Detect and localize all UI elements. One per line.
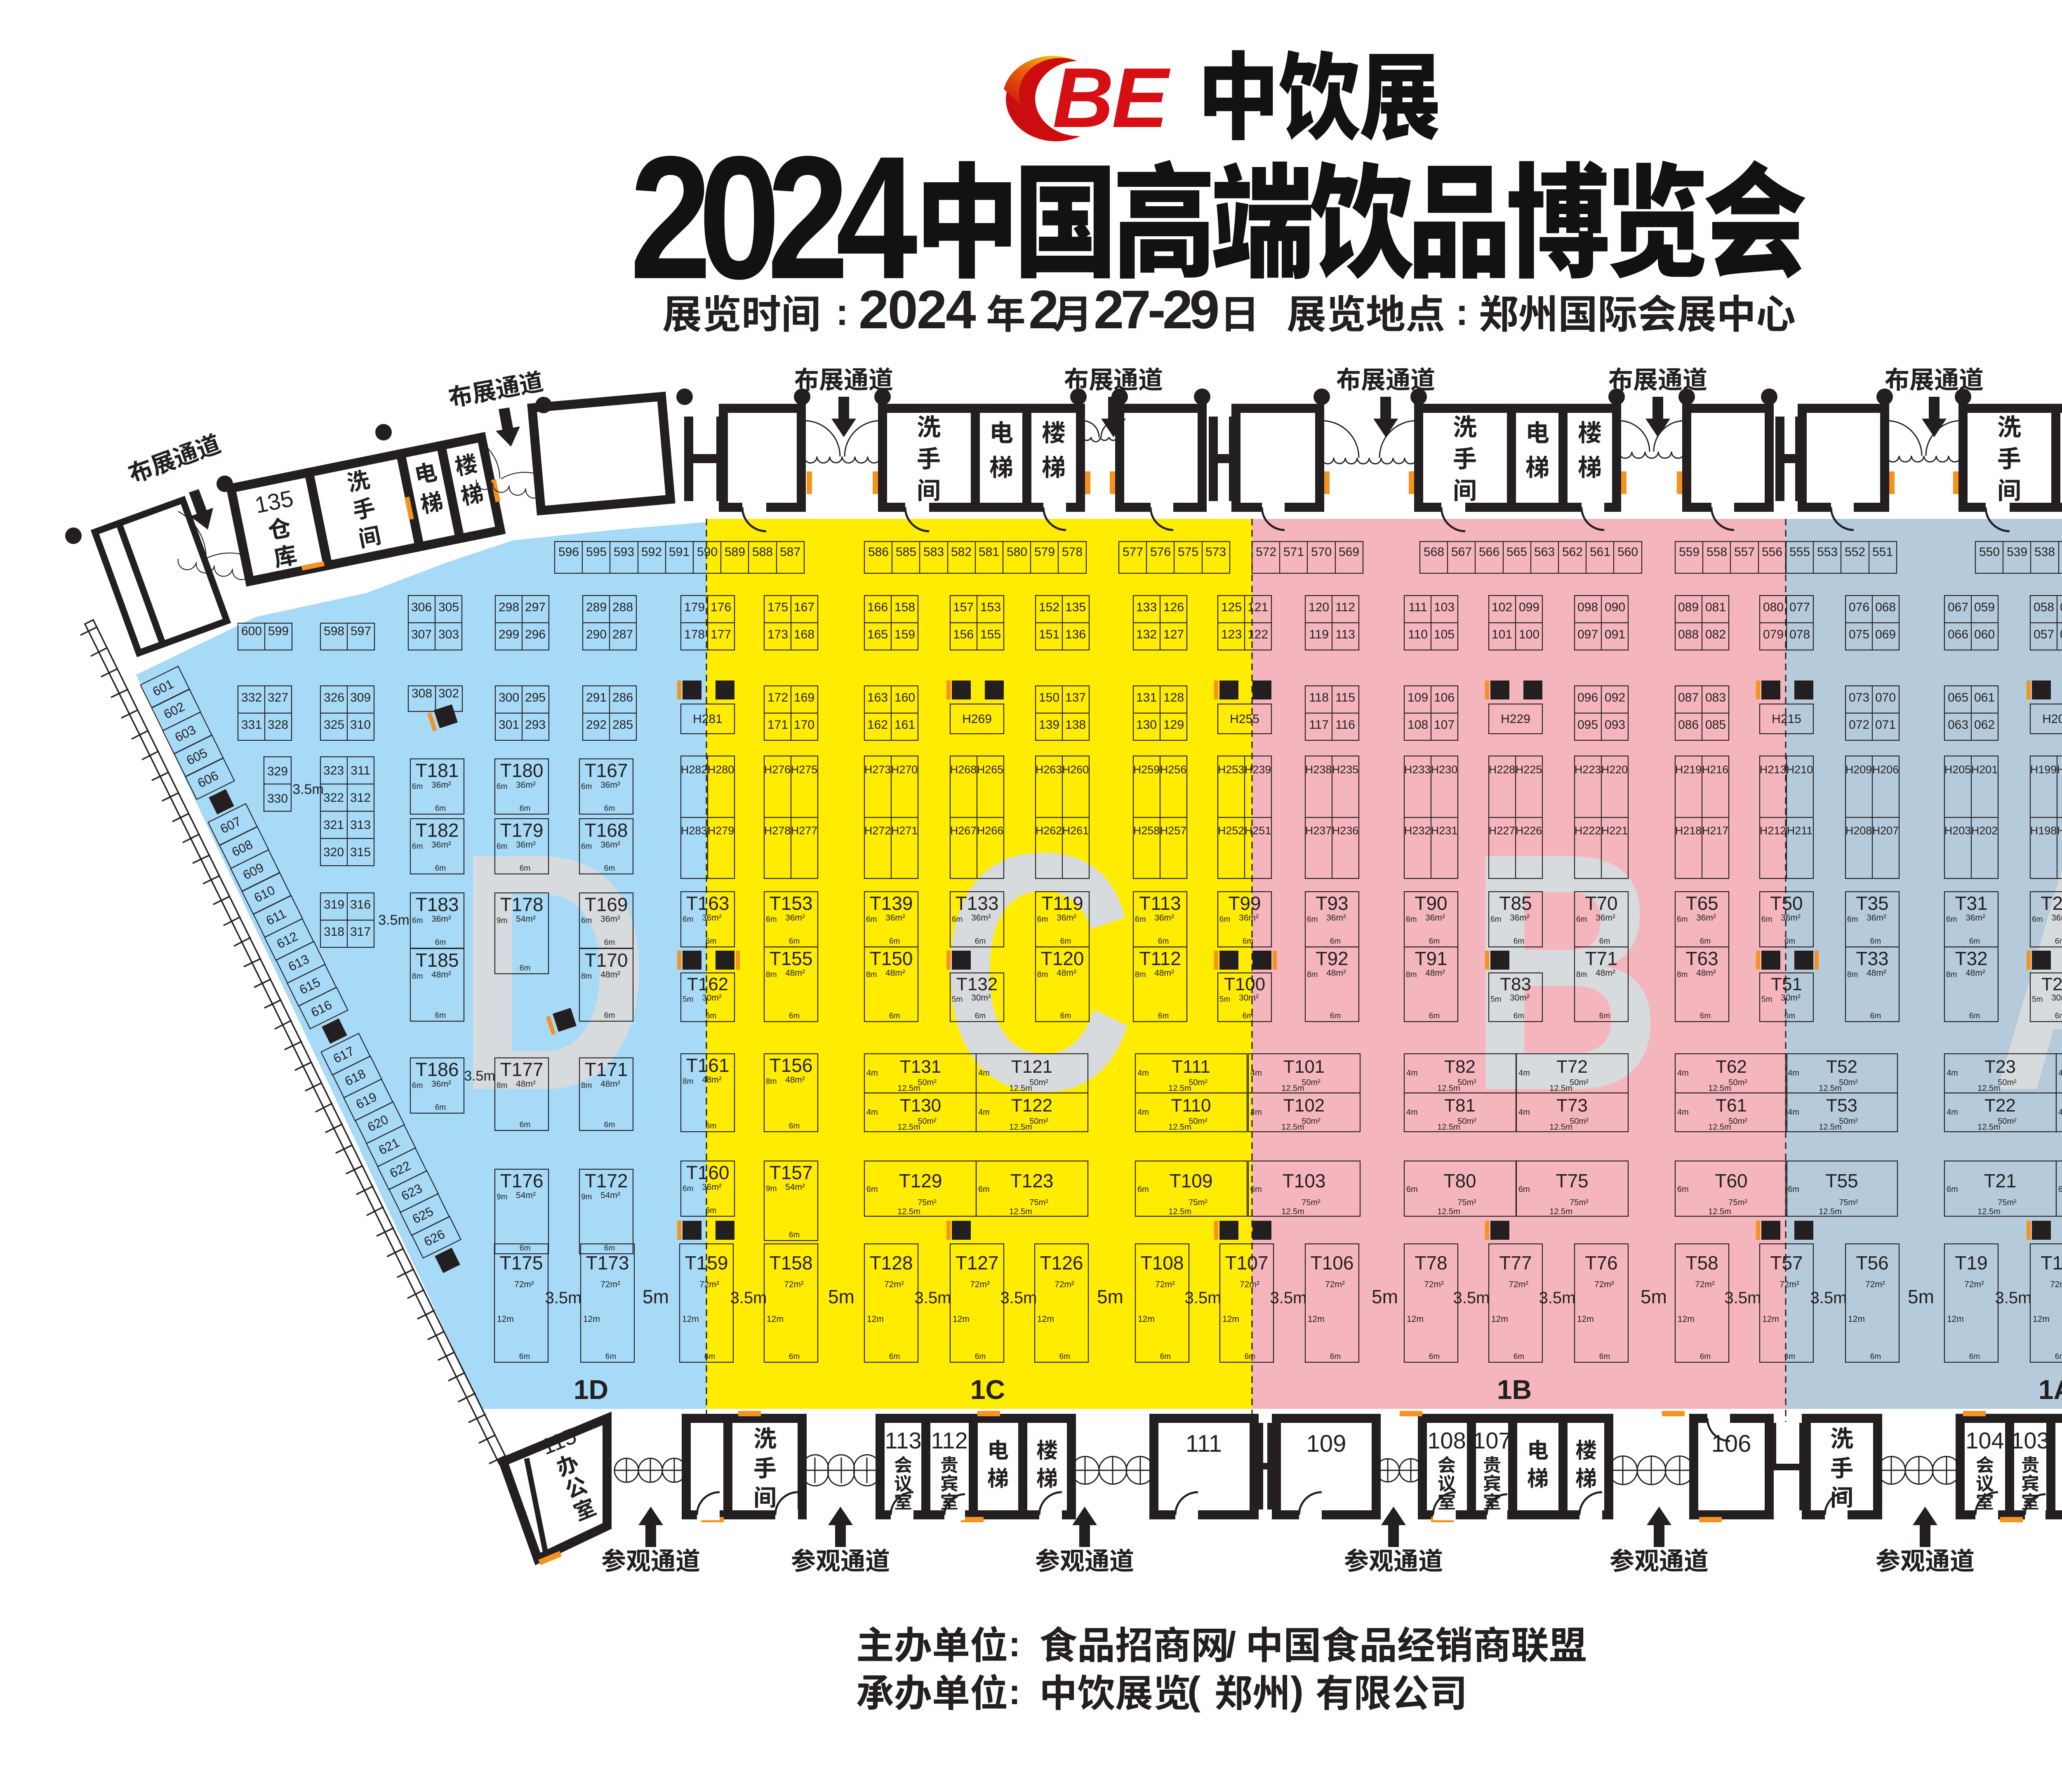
svg-text:75m²: 75m²	[1029, 1198, 1048, 1207]
svg-text:48m²: 48m²	[1867, 968, 1886, 978]
svg-text:104: 104	[1965, 1427, 2004, 1453]
svg-text:6m: 6m	[889, 1352, 900, 1361]
svg-text:12m: 12m	[682, 1314, 699, 1324]
svg-text:5m: 5m	[1761, 995, 1772, 1004]
svg-text:6m: 6m	[706, 1122, 716, 1130]
svg-text:36m²: 36m²	[431, 780, 451, 790]
svg-text:H256: H256	[1160, 763, 1187, 776]
svg-text:068: 068	[1875, 600, 1896, 614]
svg-text:12m: 12m	[1138, 1314, 1155, 1324]
svg-text:T126: T126	[1040, 1252, 1083, 1274]
svg-text:8m: 8m	[581, 972, 592, 981]
svg-text:T22: T22	[1984, 1095, 2016, 1116]
svg-text:12.5m: 12.5m	[1168, 1207, 1191, 1216]
svg-text:6m: 6m	[683, 1184, 693, 1193]
svg-text:6m: 6m	[1243, 1012, 1253, 1020]
svg-text:H230: H230	[1431, 763, 1458, 776]
svg-text:097: 097	[1577, 628, 1598, 641]
svg-text:118: 118	[1309, 691, 1329, 704]
svg-text:12.5m: 12.5m	[1708, 1123, 1731, 1132]
svg-text:H232: H232	[1404, 824, 1431, 837]
svg-text:320: 320	[323, 845, 344, 859]
svg-text:539: 539	[2007, 545, 2027, 559]
svg-text:50m²: 50m²	[1998, 1078, 2017, 1087]
svg-text:4m: 4m	[1788, 1108, 1799, 1117]
svg-text:50m²: 50m²	[1302, 1117, 1321, 1126]
svg-text:T111: T111	[1172, 1057, 1210, 1077]
svg-text:088: 088	[1678, 628, 1699, 641]
svg-text:T77: T77	[1499, 1252, 1532, 1274]
svg-text:50m²: 50m²	[1570, 1078, 1589, 1087]
svg-text:589: 589	[725, 545, 745, 559]
svg-text:8m: 8m	[766, 1077, 777, 1086]
svg-text:5m: 5m	[683, 995, 693, 1004]
svg-text:153: 153	[980, 600, 1001, 614]
svg-text:6m: 6m	[520, 864, 530, 873]
svg-text:12m: 12m	[1308, 1314, 1325, 1324]
svg-text:072: 072	[1849, 718, 1869, 732]
svg-text:50m²: 50m²	[918, 1078, 937, 1087]
svg-text:588: 588	[752, 545, 773, 559]
svg-text:080: 080	[1763, 600, 1784, 614]
svg-text:48m²: 48m²	[600, 1079, 620, 1089]
svg-text:H219: H219	[1675, 763, 1702, 776]
svg-text:T112: T112	[1139, 948, 1181, 969]
svg-text:3.5m: 3.5m	[1725, 1289, 1761, 1307]
svg-text:6m: 6m	[766, 915, 777, 924]
svg-text:6m: 6m	[1160, 1352, 1171, 1361]
svg-text:72m²: 72m²	[970, 1280, 990, 1289]
svg-text:096: 096	[1577, 691, 1598, 704]
svg-text:061: 061	[1974, 691, 1995, 704]
svg-text:48m²: 48m²	[785, 1075, 805, 1085]
svg-text:12.5m: 12.5m	[1977, 1084, 2001, 1093]
svg-text:6m: 6m	[581, 782, 592, 791]
svg-text:600: 600	[241, 624, 262, 638]
svg-text:6m: 6m	[1700, 937, 1711, 946]
svg-text:576: 576	[1150, 545, 1171, 559]
svg-text:6m: 6m	[789, 1012, 800, 1020]
svg-text:6m: 6m	[412, 782, 423, 791]
svg-text:48m²: 48m²	[1154, 968, 1174, 978]
svg-text:136: 136	[1065, 628, 1086, 641]
svg-text:310: 310	[350, 718, 371, 732]
svg-text:6m: 6m	[497, 782, 507, 791]
svg-text:312: 312	[350, 791, 371, 805]
svg-text:H221: H221	[1601, 824, 1628, 837]
svg-text:T21: T21	[1984, 1170, 2016, 1192]
svg-text:36m²: 36m²	[431, 840, 451, 850]
svg-text:T35: T35	[1856, 892, 1888, 914]
svg-text:287: 287	[612, 628, 633, 641]
svg-text:6m: 6m	[1514, 1352, 1524, 1361]
svg-text:056: 056	[2060, 628, 2062, 641]
svg-text:5m: 5m	[1097, 1286, 1123, 1307]
svg-text:6m: 6m	[1429, 1012, 1440, 1020]
svg-text:27-29: 27-29	[1094, 279, 1218, 340]
svg-text:12.5m: 12.5m	[1168, 1123, 1191, 1132]
svg-text:6m: 6m	[1784, 937, 1795, 946]
svg-text:166: 166	[867, 600, 888, 614]
svg-text:6m: 6m	[975, 1352, 986, 1361]
svg-text:117: 117	[1309, 718, 1329, 732]
svg-text:6m: 6m	[889, 1012, 900, 1020]
svg-text:12.5m: 12.5m	[1009, 1084, 1032, 1093]
svg-text:72m²: 72m²	[1695, 1280, 1715, 1289]
svg-text:30m²: 30m²	[1781, 993, 1801, 1003]
svg-text:6m: 6m	[1429, 937, 1440, 946]
svg-text:6m: 6m	[1307, 915, 1318, 924]
svg-text:T78: T78	[1415, 1252, 1447, 1274]
svg-text:559: 559	[1679, 545, 1700, 559]
svg-text:177: 177	[711, 628, 731, 641]
svg-text:4m: 4m	[866, 1069, 878, 1078]
svg-text:12m: 12m	[1222, 1314, 1239, 1324]
svg-text:8m: 8m	[1135, 970, 1146, 979]
svg-text:T25: T25	[2041, 974, 2062, 994]
svg-text:6m: 6m	[1514, 937, 1524, 946]
svg-text:6m: 6m	[1599, 937, 1610, 946]
svg-text:1A: 1A	[2038, 1374, 2062, 1405]
svg-text:6m: 6m	[683, 915, 693, 924]
svg-text:085: 085	[1705, 718, 1726, 732]
svg-text:138: 138	[1065, 718, 1086, 732]
svg-text:577: 577	[1123, 545, 1143, 559]
svg-text:36m²: 36m²	[600, 780, 620, 790]
svg-text:36m²: 36m²	[431, 1079, 451, 1089]
svg-text:565: 565	[1506, 545, 1527, 559]
svg-text:36m²: 36m²	[1154, 913, 1174, 923]
svg-text:T90: T90	[1415, 892, 1447, 914]
svg-text:6m: 6m	[1060, 937, 1071, 946]
svg-text:4m: 4m	[978, 1069, 990, 1078]
svg-text:T58: T58	[1685, 1252, 1718, 1274]
svg-text:3.5m: 3.5m	[1539, 1289, 1576, 1307]
svg-text:T153: T153	[770, 892, 813, 914]
svg-text:T60: T60	[1715, 1170, 1747, 1192]
svg-text:12.5m: 12.5m	[1819, 1123, 1842, 1132]
svg-text:6m: 6m	[604, 1011, 615, 1020]
svg-text:060: 060	[1974, 628, 1995, 641]
svg-text:3.5m: 3.5m	[1995, 1289, 2032, 1307]
svg-text:48m²: 48m²	[885, 968, 905, 978]
svg-text:580: 580	[1007, 545, 1027, 559]
svg-text:331: 331	[241, 718, 262, 732]
svg-text:72m²: 72m²	[884, 1280, 904, 1289]
svg-text:H255: H255	[1230, 712, 1259, 726]
svg-text:48m²: 48m²	[1425, 968, 1445, 978]
svg-text:H261: H261	[1062, 824, 1089, 837]
svg-text:T110: T110	[1171, 1095, 1211, 1116]
svg-text:H259: H259	[1133, 763, 1160, 776]
svg-text:059: 059	[1974, 600, 1995, 614]
svg-text:6m: 6m	[520, 804, 530, 813]
svg-text:H258: H258	[1133, 824, 1160, 837]
svg-text:12.5m: 12.5m	[897, 1123, 920, 1132]
svg-text:H260: H260	[1062, 763, 1089, 776]
svg-text:567: 567	[1451, 545, 1472, 559]
svg-text:157: 157	[953, 600, 974, 614]
svg-text:599: 599	[268, 624, 289, 638]
svg-text:30m²: 30m²	[702, 993, 722, 1003]
svg-text:8m: 8m	[1037, 970, 1048, 979]
svg-text:30m²: 30m²	[1239, 993, 1259, 1003]
svg-text:6m: 6m	[1599, 1012, 1610, 1020]
svg-text:598: 598	[324, 624, 344, 638]
svg-text:316: 316	[350, 898, 371, 911]
svg-text:H205: H205	[1944, 763, 1971, 776]
svg-text:332: 332	[241, 691, 262, 704]
svg-text:T32: T32	[1955, 948, 1987, 969]
svg-text:556: 556	[1762, 545, 1782, 559]
svg-text:315: 315	[350, 845, 371, 859]
svg-text:H271: H271	[891, 824, 918, 837]
svg-text:4m: 4m	[1947, 1069, 1958, 1078]
svg-text:6m: 6m	[412, 842, 423, 851]
svg-text:6m: 6m	[1243, 937, 1253, 946]
svg-text:T65: T65	[1685, 892, 1718, 914]
svg-text:081: 081	[1705, 600, 1726, 614]
svg-text:H208: H208	[1845, 824, 1872, 837]
svg-text:12m: 12m	[1407, 1314, 1424, 1324]
svg-text:570: 570	[1311, 545, 1332, 559]
svg-text:H222: H222	[1575, 824, 1601, 837]
svg-text:592: 592	[641, 545, 662, 559]
svg-text:75m²: 75m²	[918, 1198, 937, 1207]
svg-text:6m: 6m	[1037, 915, 1048, 924]
svg-text:128: 128	[1163, 691, 1184, 704]
svg-text:H257: H257	[1160, 824, 1187, 837]
svg-text:103: 103	[1434, 600, 1455, 614]
svg-text:289: 289	[586, 600, 607, 614]
svg-text:T156: T156	[770, 1055, 813, 1076]
svg-text:585: 585	[896, 545, 916, 559]
svg-text:36m²: 36m²	[1596, 913, 1615, 923]
svg-text:H228: H228	[1489, 763, 1516, 776]
svg-text:6m: 6m	[412, 1081, 423, 1090]
svg-text:1B: 1B	[1497, 1374, 1532, 1405]
svg-text:6m: 6m	[789, 1352, 800, 1361]
svg-text:T26: T26	[2041, 892, 2062, 914]
svg-text:109: 109	[1408, 691, 1428, 704]
svg-text:6m: 6m	[1059, 1352, 1070, 1361]
svg-text:581: 581	[979, 545, 999, 559]
svg-text:158: 158	[894, 600, 915, 614]
svg-text:H236: H236	[1332, 824, 1359, 837]
svg-text:T183: T183	[416, 894, 459, 915]
svg-text:4m: 4m	[2058, 1108, 2062, 1117]
svg-text:099: 099	[1519, 600, 1539, 614]
svg-text:105: 105	[1434, 628, 1455, 641]
svg-text:069: 069	[1875, 628, 1896, 641]
svg-text:561: 561	[1590, 545, 1610, 559]
svg-text:305: 305	[438, 600, 459, 614]
svg-text:126: 126	[1163, 600, 1184, 614]
svg-text:116: 116	[1335, 718, 1355, 732]
svg-text:H216: H216	[1702, 763, 1729, 776]
svg-text:4m: 4m	[866, 1108, 878, 1117]
svg-text::: :	[1008, 1671, 1020, 1712]
svg-text:H223: H223	[1575, 763, 1601, 776]
svg-text:T102: T102	[1283, 1095, 1325, 1116]
svg-text:T180: T180	[500, 760, 544, 781]
svg-text:36m²: 36m²	[1239, 913, 1259, 923]
svg-text:6m: 6m	[789, 1231, 800, 1239]
svg-text:30m²: 30m²	[1510, 993, 1530, 1003]
svg-text:12.5m: 12.5m	[1281, 1123, 1304, 1132]
svg-text:106: 106	[1434, 691, 1455, 704]
svg-text:6m: 6m	[1490, 915, 1501, 924]
svg-text:36m²: 36m²	[516, 780, 536, 790]
svg-text:12.5m: 12.5m	[1549, 1207, 1572, 1216]
svg-text:5m: 5m	[2032, 995, 2043, 1004]
svg-text:5m: 5m	[1641, 1286, 1667, 1307]
svg-text:T167: T167	[585, 760, 628, 781]
svg-text:6m: 6m	[2055, 937, 2062, 946]
svg-text:6m: 6m	[1137, 1185, 1149, 1194]
svg-text:123: 123	[1221, 628, 1242, 641]
svg-text:72m²: 72m²	[1424, 1280, 1444, 1289]
svg-text:538: 538	[2034, 545, 2055, 559]
svg-text:6m: 6m	[1158, 1012, 1169, 1020]
svg-text:596: 596	[558, 545, 579, 559]
svg-text:102: 102	[1492, 600, 1512, 614]
svg-text:6m: 6m	[1599, 1352, 1610, 1361]
svg-text:132: 132	[1136, 628, 1157, 641]
svg-text:6m: 6m	[1969, 1352, 1980, 1361]
svg-text:50m²: 50m²	[1029, 1078, 1048, 1087]
svg-text:54m²: 54m²	[516, 914, 536, 924]
svg-text:1D: 1D	[574, 1374, 608, 1405]
svg-text:091: 091	[1605, 628, 1625, 641]
svg-text:72m²: 72m²	[1594, 1280, 1614, 1289]
svg-text:579: 579	[1034, 545, 1055, 559]
svg-text:6m: 6m	[435, 1011, 446, 1020]
svg-text:(: (	[1187, 1669, 1200, 1713]
svg-text:H197: H197	[2057, 824, 2062, 837]
svg-text:6m: 6m	[975, 937, 986, 946]
svg-text:3.5m: 3.5m	[378, 912, 410, 928]
svg-text:T63: T63	[1685, 948, 1718, 969]
svg-text:303: 303	[438, 628, 459, 641]
svg-text:6m: 6m	[789, 937, 800, 946]
svg-text:T83: T83	[1500, 974, 1531, 994]
svg-text:552: 552	[1845, 545, 1865, 559]
svg-text:165: 165	[867, 628, 888, 641]
svg-text:6m: 6m	[604, 938, 615, 947]
svg-text:12.5m: 12.5m	[1168, 1084, 1191, 1093]
svg-text:T185: T185	[416, 949, 459, 971]
svg-text:129: 129	[1163, 718, 1184, 732]
svg-text:75m²: 75m²	[1457, 1198, 1476, 1207]
svg-text:H213: H213	[1760, 763, 1787, 776]
svg-text:591: 591	[669, 545, 690, 559]
svg-text:T171: T171	[585, 1059, 628, 1080]
svg-text:6m: 6m	[1330, 1352, 1341, 1361]
svg-text:H198: H198	[2030, 824, 2057, 837]
svg-text:115: 115	[1335, 691, 1355, 704]
svg-text:6m: 6m	[435, 1103, 446, 1112]
svg-text:6m: 6m	[1330, 937, 1341, 946]
svg-text:4m: 4m	[1518, 1108, 1530, 1117]
svg-text:169: 169	[794, 691, 814, 704]
svg-text:H280: H280	[708, 763, 734, 776]
svg-text:155: 155	[980, 628, 1001, 641]
svg-text:T159: T159	[685, 1252, 728, 1274]
svg-text:9m: 9m	[497, 1193, 507, 1201]
svg-text:T33: T33	[1856, 948, 1888, 969]
svg-text:297: 297	[525, 600, 546, 614]
svg-text:3.5m: 3.5m	[1810, 1289, 1847, 1307]
svg-text:582: 582	[951, 545, 972, 559]
svg-text:3.5m: 3.5m	[915, 1289, 951, 1307]
svg-text:6m: 6m	[1250, 1185, 1262, 1194]
svg-text:T130: T130	[900, 1095, 941, 1116]
svg-text:179: 179	[684, 600, 705, 614]
svg-text:6m: 6m	[1245, 1352, 1255, 1361]
svg-text:T51: T51	[1771, 974, 1802, 994]
svg-text:T186: T186	[416, 1059, 459, 1080]
svg-text:329: 329	[267, 765, 288, 778]
svg-text:5m: 5m	[828, 1286, 854, 1307]
svg-text:178: 178	[684, 628, 705, 641]
svg-text:6m: 6m	[706, 1206, 716, 1215]
svg-text:119: 119	[1309, 628, 1329, 641]
svg-text:058: 058	[2034, 600, 2054, 614]
svg-text:6m: 6m	[2055, 1012, 2062, 1020]
svg-text:291: 291	[586, 691, 607, 704]
svg-text:8m: 8m	[766, 970, 777, 979]
svg-text:H262: H262	[1036, 824, 1062, 837]
svg-text:308: 308	[412, 687, 432, 700]
svg-text:T61: T61	[1716, 1095, 1747, 1116]
svg-text:T85: T85	[1499, 892, 1532, 914]
svg-text:8m: 8m	[581, 1081, 592, 1090]
svg-text:6m: 6m	[435, 864, 446, 873]
svg-text:6m: 6m	[520, 1244, 530, 1253]
svg-text:H212: H212	[1760, 824, 1787, 837]
svg-text:T72: T72	[1556, 1057, 1588, 1077]
svg-text:6m: 6m	[1969, 1012, 1980, 1020]
svg-text:139: 139	[1039, 718, 1059, 732]
svg-text:50m²: 50m²	[1189, 1117, 1208, 1126]
svg-text:4m: 4m	[1250, 1108, 1262, 1117]
svg-text:298: 298	[499, 600, 519, 614]
svg-text:T127: T127	[956, 1252, 999, 1274]
svg-text:161: 161	[894, 718, 915, 732]
svg-text:12.5m: 12.5m	[1437, 1207, 1460, 1216]
svg-text:6m: 6m	[706, 1012, 716, 1020]
svg-text:566: 566	[1479, 545, 1499, 559]
svg-text:6m: 6m	[1870, 1352, 1881, 1361]
svg-text:6m: 6m	[975, 1012, 986, 1020]
svg-text:6m: 6m	[1135, 915, 1146, 924]
svg-text:106: 106	[1711, 1430, 1751, 1457]
svg-text:160: 160	[894, 691, 915, 704]
svg-text:H263: H263	[1036, 763, 1062, 776]
svg-text:558: 558	[1707, 545, 1727, 559]
svg-text:101: 101	[1492, 628, 1512, 641]
svg-text:12.5m: 12.5m	[1708, 1084, 1731, 1093]
svg-text:T82: T82	[1444, 1057, 1476, 1077]
svg-text:6m: 6m	[704, 1352, 715, 1361]
svg-text:5m: 5m	[952, 995, 963, 1004]
svg-text:8m: 8m	[683, 1077, 693, 1086]
svg-text:302: 302	[438, 687, 459, 700]
svg-text:48m²: 48m²	[600, 970, 620, 980]
svg-text:36m²: 36m²	[785, 913, 805, 923]
svg-text:6m: 6m	[604, 1244, 615, 1253]
